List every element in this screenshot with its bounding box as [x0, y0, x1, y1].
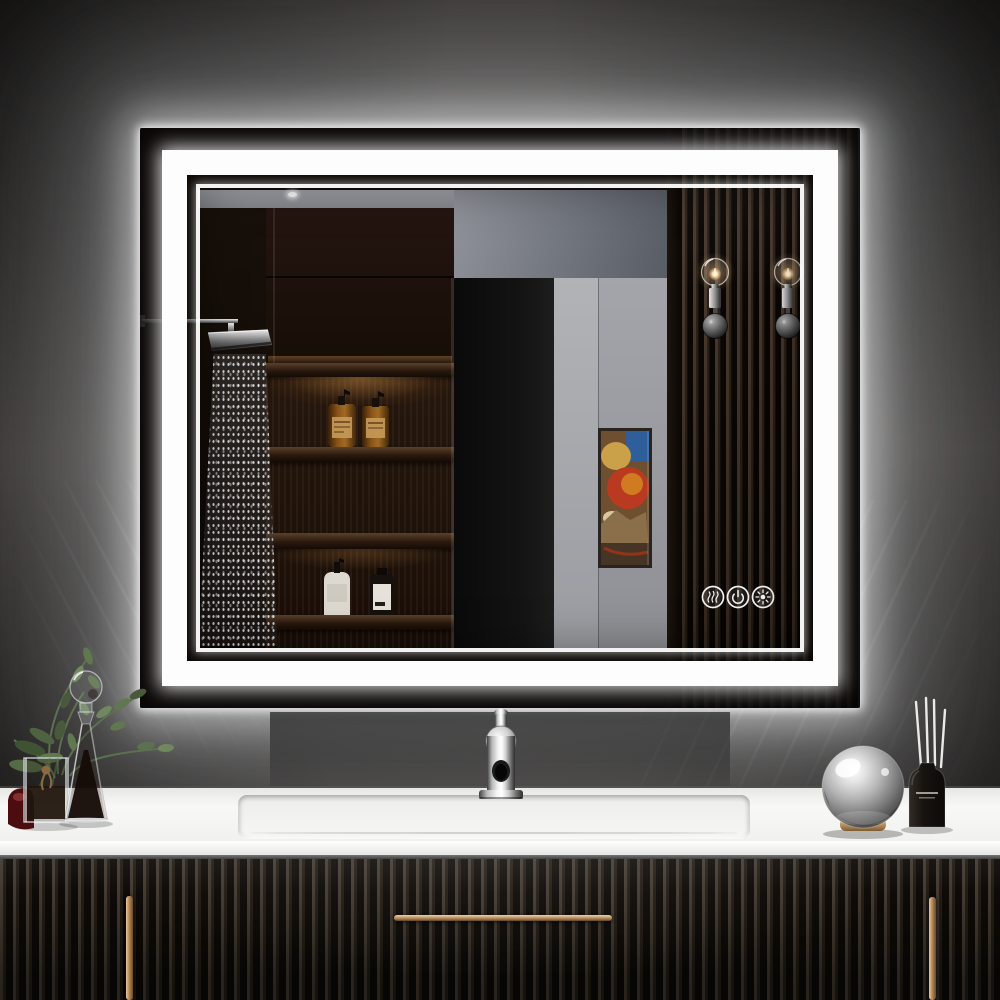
sink-basin	[238, 795, 750, 839]
faucet-spout-opening	[495, 764, 507, 780]
vanity-shading	[0, 859, 1000, 1000]
vanity-drawer-handle	[394, 915, 612, 921]
diffuser-label	[916, 792, 938, 794]
mirrored-sphere	[822, 746, 904, 831]
right-counter-decor	[800, 690, 1000, 840]
chrome-faucet	[462, 706, 538, 800]
mirror-edge	[139, 127, 861, 709]
diffuser-reeds	[916, 698, 945, 767]
vanity-handle-right	[929, 897, 936, 1000]
left-counter-decor	[0, 600, 230, 835]
square-glass-vase	[24, 758, 68, 822]
product-photo	[0, 0, 1000, 1000]
diffuser-bottle	[909, 763, 945, 827]
reed-diffuser	[909, 698, 945, 827]
counter-front-edge	[0, 841, 1000, 855]
vanity-handle-left	[126, 896, 133, 1000]
led-mirror	[140, 128, 860, 708]
